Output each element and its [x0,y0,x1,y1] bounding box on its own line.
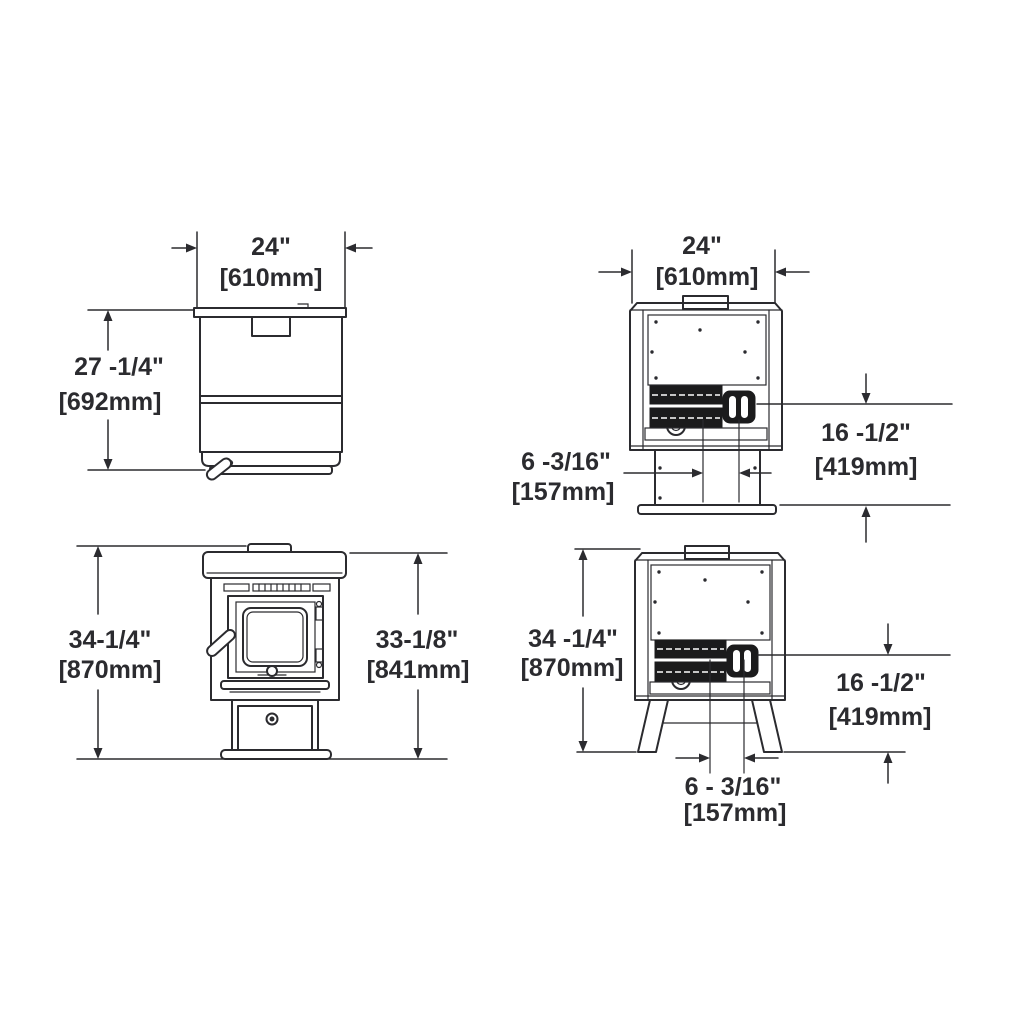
door-latch-ornament [258,666,286,676]
back-panel [648,315,766,385]
panel-screws [650,320,759,379]
side-width-inches-label: 24" [251,233,291,261]
bottom-rail [645,428,767,440]
base-plate [221,750,331,759]
front-view-stove-body [203,544,346,759]
arrowhead-up [579,549,588,560]
door-hinges [316,602,323,668]
arrowhead-left [775,268,786,277]
arrowhead-up [414,553,423,564]
door-handle [205,628,237,658]
back-panel [651,565,770,640]
front-body-height-inches-label: 33-1/8" [376,626,459,654]
arrowhead-right [692,469,703,478]
arrowhead-down [94,748,103,759]
front-overall-height-mm-label: [870mm] [59,656,162,684]
stove-dimension-drawing: 24" [610mm] 27 -1/4" [692mm] [0,0,1024,1024]
rear-legs-flue-height-mm-label: [419mm] [829,703,932,731]
front-overall-height-inches-label: 34-1/4" [69,626,152,654]
side-height-inches-label: 27 -1/4" [74,353,164,381]
side-width-mm-label: [610mm] [220,264,323,292]
arrowhead-up [884,752,893,763]
arrowhead-up [104,310,113,321]
right-leg [752,700,782,752]
panel-screws [653,570,763,634]
rear-legs-overall-height-inches-label: 34 -1/4" [528,625,618,653]
left-leg [638,700,668,752]
arrowhead-down [579,741,588,752]
pedestal-sides [232,700,318,750]
rear-legs-flue-height-dimension: 16 -1/2" [419mm] [758,624,950,783]
front-view: 34-1/4" [870mm] 33-1/8" [841mm] [59,544,470,759]
ash-lip [221,681,329,689]
rear-legs-flue-height-inches-label: 16 -1/2" [836,669,926,697]
rear-pedestal-flue-height-dimension: 16 -1/2" [419mm] [757,374,952,542]
arrowhead-left [739,469,750,478]
arrowhead-up [94,546,103,557]
arrowhead-right [699,754,710,763]
top-lid [203,552,346,578]
stove-dimension-diagram: 24" [610mm] 27 -1/4" [692mm] [0,0,1024,1024]
arrowhead-up [862,506,871,517]
blower-motor [723,391,755,423]
arrowhead-right [621,268,632,277]
rear-pedestal-width-mm-label: [610mm] [656,263,759,291]
rear-legs-stove-body [635,546,785,773]
rear-pedestal-flue-height-mm-label: [419mm] [815,453,918,481]
door-window [243,608,307,666]
mid-band [200,396,342,403]
rear-legs-view: 34 -1/4" [870mm] 16 -1/2" [419mm] 6 - 3/… [521,546,950,827]
front-body-height-mm-label: [841mm] [367,656,470,684]
body-outline [200,317,342,452]
rear-pedestal-view: 24" [610mm] 6 -3/16" [157mm] 16 -1/2" [4… [512,232,952,542]
arrowhead-left [744,754,755,763]
vent-slots [224,584,330,591]
rear-legs-flue-offset-dimension: 6 - 3/16" [157mm] [676,754,786,828]
arrowhead-down [104,459,113,470]
rear-pedestal-flue-offset-mm-label: [157mm] [512,478,615,506]
top-plate [194,308,346,317]
blower-motor [727,645,758,677]
heat-exchanger [655,640,726,682]
rear-pedestal-stove-body [630,296,782,514]
arrowhead-right [186,244,197,253]
rear-legs-flue-offset-inches-label: 6 - 3/16" [685,773,782,801]
drawer-front [238,706,312,750]
side-view-width-dimension: 24" [610mm] [172,232,372,308]
rear-pedestal-flue-offset-dimension: 6 -3/16" [157mm] [512,448,771,506]
rear-legs-overall-height-dimension: 34 -1/4" [870mm] [521,549,640,752]
rear-legs-flue-offset-mm-label: [157mm] [684,799,787,827]
base-plate [638,505,776,514]
front-view-body-height-dimension: 33-1/8" [841mm] [350,553,469,759]
side-view: 24" [610mm] 27 -1/4" [692mm] [59,232,372,482]
rear-pedestal-flue-offset-inches-label: 6 -3/16" [521,448,611,476]
rear-pedestal-width-dimension: 24" [610mm] [599,232,809,303]
side-height-mm-label: [692mm] [59,388,162,416]
arrowhead-down [414,748,423,759]
hopper-lid [252,317,290,336]
drawer-knob-center [270,717,275,722]
pedestal-sides [655,450,760,505]
arrowhead-down [862,393,871,404]
rear-pedestal-flue-height-inches-label: 16 -1/2" [821,419,911,447]
arrowhead-down [884,644,893,655]
rear-pedestal-width-inches-label: 24" [682,232,722,260]
pedestal-screws [658,466,756,499]
rear-legs-overall-height-mm-label: [870mm] [521,654,624,682]
arrowhead-left [345,244,356,253]
side-view-height-dimension: 27 -1/4" [692mm] [59,310,205,470]
side-view-stove-body [194,304,346,482]
door-window-inner [247,612,303,662]
heat-exchanger [650,386,722,428]
